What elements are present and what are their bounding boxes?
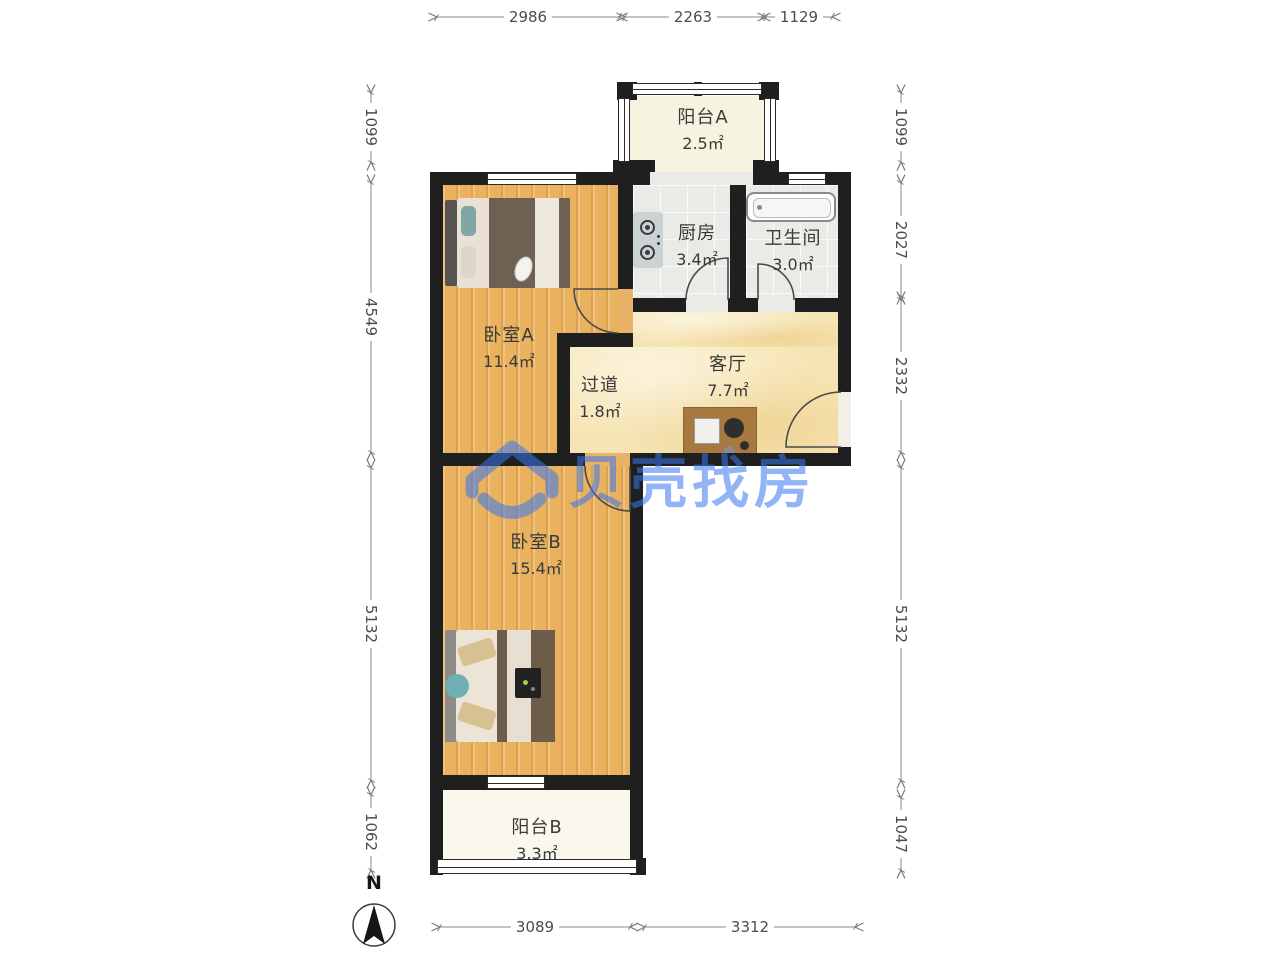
room-area: 1.8㎡ bbox=[579, 398, 620, 422]
room-area: 3.3㎡ bbox=[511, 840, 562, 864]
dim-label: 1129 bbox=[775, 8, 823, 26]
dim-label: 1047 bbox=[892, 810, 910, 858]
floor-plan-canvas: 2986 2263 1129 1099 4549 5132 1062 1099 … bbox=[0, 0, 1276, 960]
room-label-balcony-b: 阳台B 3.3㎡ bbox=[511, 813, 562, 864]
room-area: 7.7㎡ bbox=[707, 377, 748, 401]
room-name: 卧室A bbox=[483, 321, 535, 347]
room-area: 3.0㎡ bbox=[765, 251, 822, 275]
dim-label: 5132 bbox=[892, 600, 910, 648]
room-name: 阳台A bbox=[677, 103, 728, 129]
room-name: 阳台B bbox=[511, 813, 562, 839]
dim-label: 2332 bbox=[892, 352, 910, 400]
room-label-balcony-a: 阳台A 2.5㎡ bbox=[677, 103, 728, 154]
compass-north-label: N bbox=[366, 872, 382, 894]
dim-label: 5132 bbox=[362, 600, 380, 648]
room-name: 厨房 bbox=[676, 219, 717, 245]
room-name: 客厅 bbox=[707, 350, 748, 376]
room-area: 15.4㎡ bbox=[510, 555, 562, 579]
dim-label: 1099 bbox=[892, 103, 910, 151]
room-area: 2.5㎡ bbox=[677, 130, 728, 154]
room-area: 11.4㎡ bbox=[483, 348, 535, 372]
dim-label: 4549 bbox=[362, 293, 380, 341]
room-name: 卧室B bbox=[510, 528, 562, 554]
north-arrow-icon bbox=[353, 904, 395, 946]
room-label-living: 客厅 7.7㎡ bbox=[707, 350, 748, 401]
room-name: 过道 bbox=[579, 371, 620, 397]
beike-logo-icon bbox=[462, 436, 562, 531]
room-label-hallway: 过道 1.8㎡ bbox=[579, 371, 620, 422]
dim-label: 2027 bbox=[892, 216, 910, 264]
room-name: 卫生间 bbox=[765, 224, 822, 250]
brand-watermark-text: 贝壳找房 bbox=[568, 436, 816, 531]
room-label-bathroom: 卫生间 3.0㎡ bbox=[765, 224, 822, 275]
brand-watermark: 贝壳找房 bbox=[462, 436, 816, 531]
dim-label: 1099 bbox=[362, 103, 380, 151]
dim-label: 2986 bbox=[504, 8, 552, 26]
room-label-bedroom-b: 卧室B 15.4㎡ bbox=[510, 528, 562, 579]
dim-label: 2263 bbox=[669, 8, 717, 26]
room-label-kitchen: 厨房 3.4㎡ bbox=[676, 219, 717, 270]
room-label-bedroom-a: 卧室A 11.4㎡ bbox=[483, 321, 535, 372]
dim-label: 3312 bbox=[726, 918, 774, 936]
dim-label: 1062 bbox=[362, 808, 380, 856]
dim-label: 3089 bbox=[511, 918, 559, 936]
room-area: 3.4㎡ bbox=[676, 246, 717, 270]
door-arc-bedroom-a bbox=[574, 289, 618, 333]
